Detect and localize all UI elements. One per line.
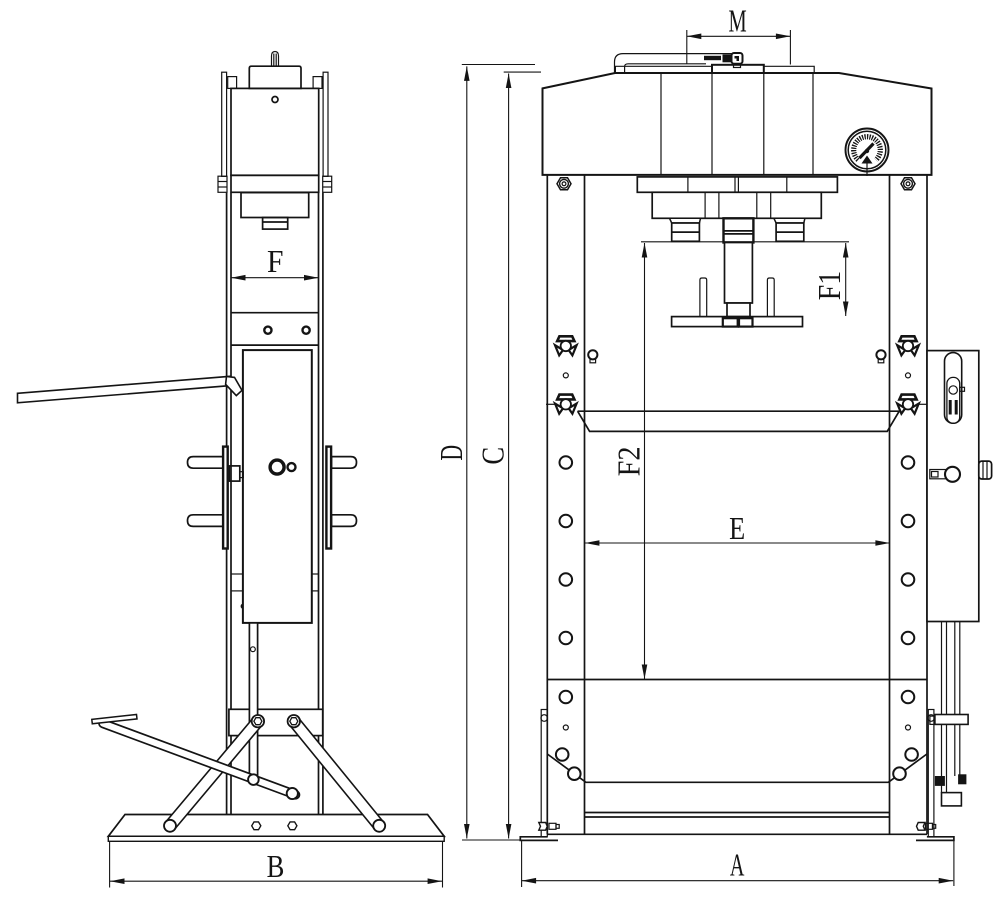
svg-text:F1: F1	[812, 271, 847, 301]
svg-text:C: C	[476, 447, 511, 465]
svg-text:A: A	[730, 847, 745, 883]
svg-text:F: F	[267, 244, 283, 279]
svg-text:B: B	[267, 850, 285, 885]
svg-text:M: M	[729, 3, 747, 39]
svg-text:D: D	[434, 445, 469, 461]
svg-text:E: E	[729, 512, 745, 547]
svg-text:F2: F2	[612, 446, 647, 476]
